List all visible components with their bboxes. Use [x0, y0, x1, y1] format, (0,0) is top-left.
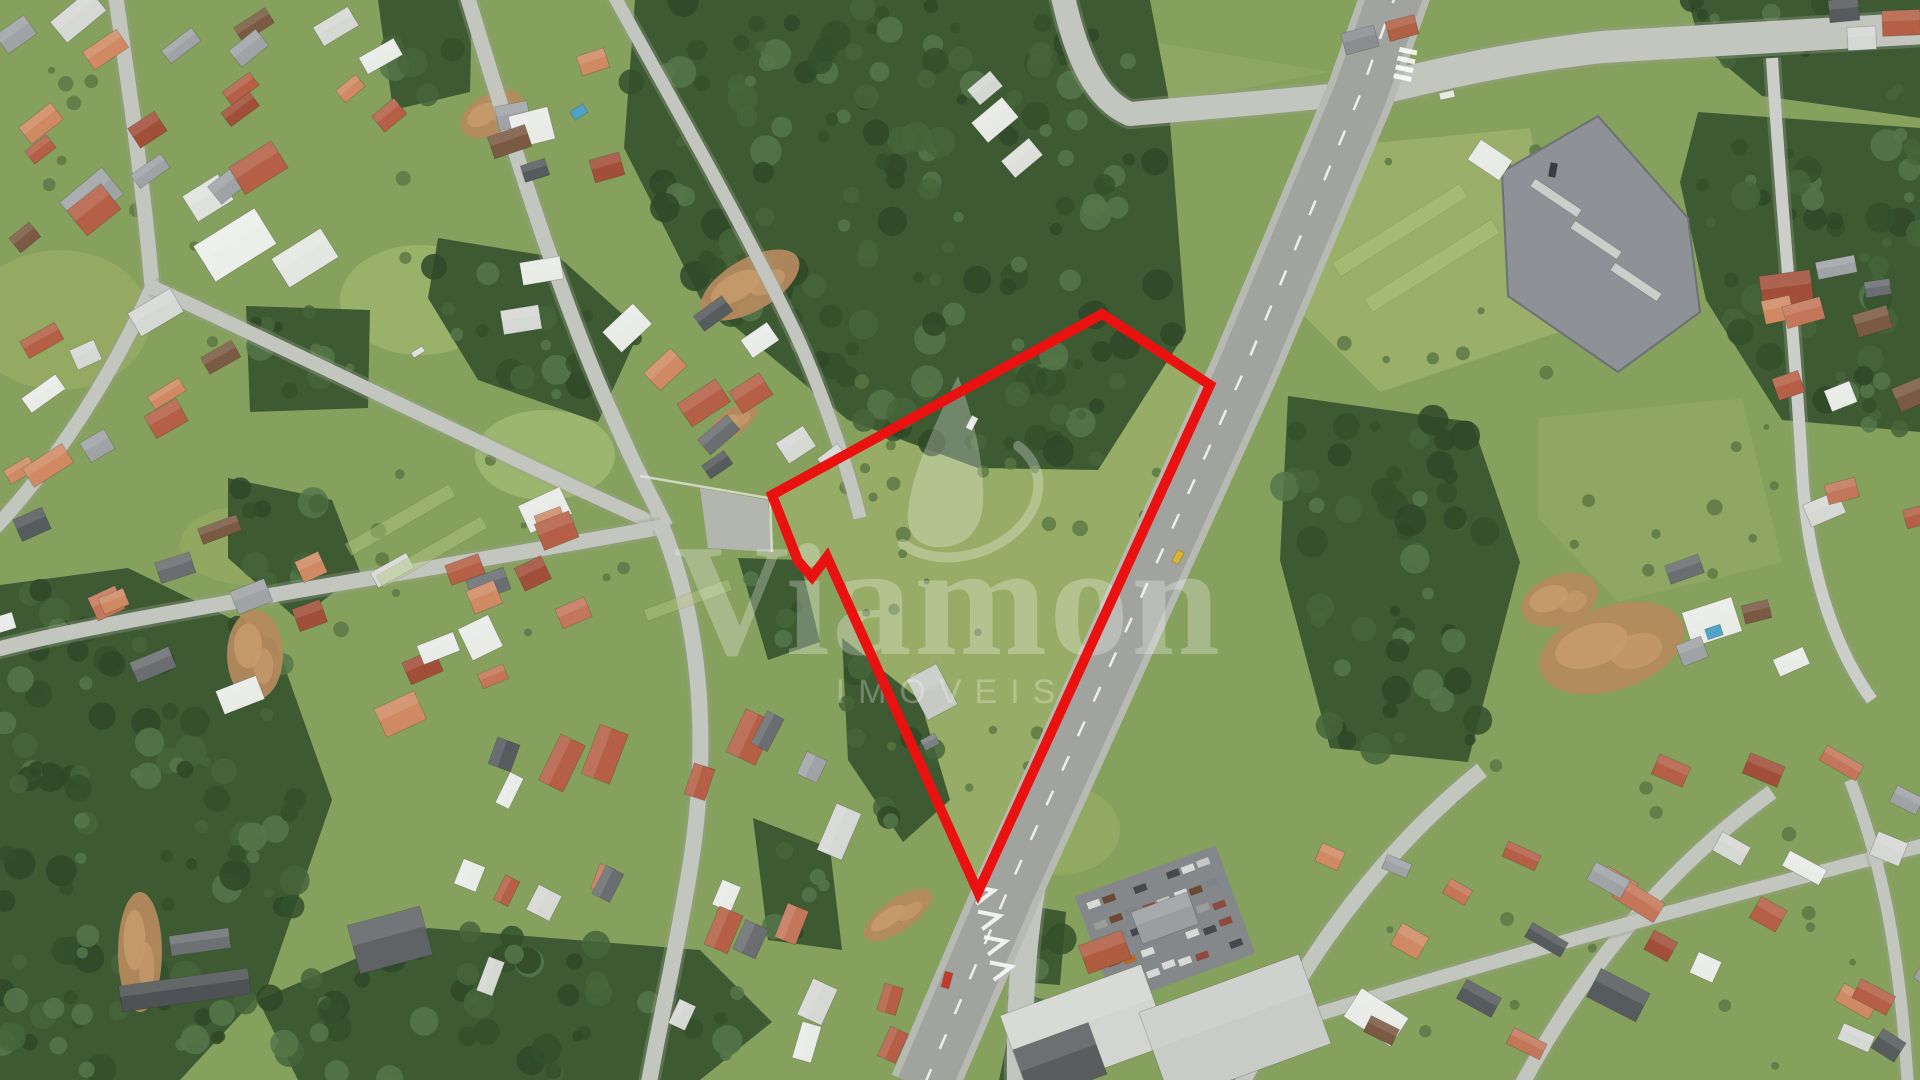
aerial-photo: Viamon IMÓVEIS	[0, 0, 1920, 1080]
watermark-subtext: IMÓVEIS	[836, 673, 1069, 711]
aerial-photo-viewport: Viamon IMÓVEIS	[0, 0, 1920, 1080]
